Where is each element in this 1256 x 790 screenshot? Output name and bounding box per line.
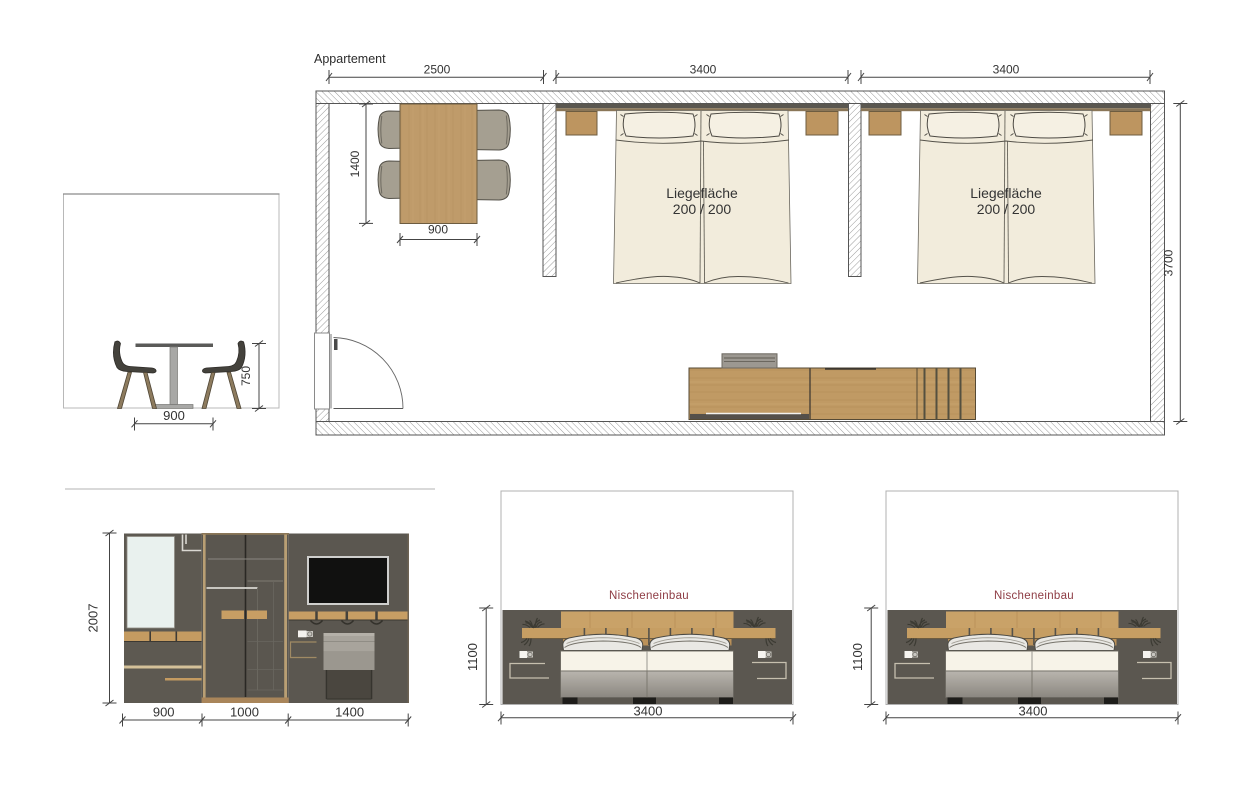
- svg-text:1400: 1400: [348, 150, 362, 177]
- svg-text:900: 900: [163, 408, 185, 423]
- svg-text:2500: 2500: [424, 63, 451, 77]
- svg-text:3400: 3400: [993, 63, 1020, 77]
- svg-text:900: 900: [153, 705, 175, 720]
- svg-text:900: 900: [428, 223, 448, 237]
- svg-text:1400: 1400: [335, 705, 364, 720]
- svg-text:3400: 3400: [634, 704, 663, 719]
- svg-text:Nischeneinbau: Nischeneinbau: [609, 590, 689, 602]
- svg-text:Liegefläche: Liegefläche: [666, 185, 738, 201]
- svg-text:1100: 1100: [465, 643, 480, 671]
- svg-text:200 / 200: 200 / 200: [977, 201, 1036, 217]
- svg-text:2007: 2007: [86, 604, 101, 633]
- svg-text:Liegefläche: Liegefläche: [970, 185, 1042, 201]
- svg-text:3400: 3400: [690, 63, 717, 77]
- svg-text:750: 750: [239, 366, 253, 386]
- svg-text:200 / 200: 200 / 200: [673, 201, 732, 217]
- svg-text:1000: 1000: [230, 705, 259, 720]
- svg-text:3700: 3700: [1162, 249, 1176, 276]
- svg-text:Appartement: Appartement: [314, 52, 386, 66]
